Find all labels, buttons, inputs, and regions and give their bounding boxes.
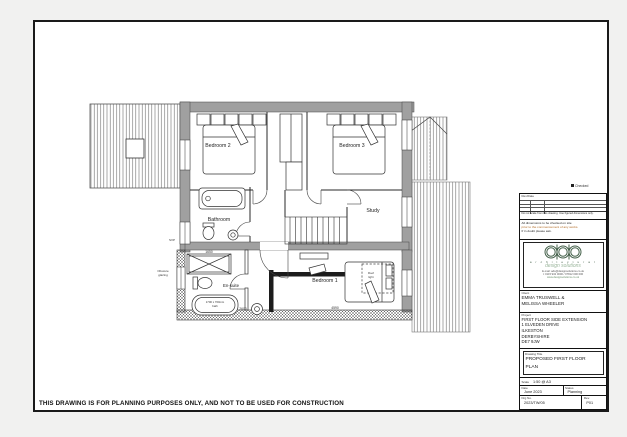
- notes-section: All dimensions to be checked on site pri…: [520, 220, 606, 240]
- status-cell: Status Planning: [564, 386, 607, 395]
- checked-label: Checked: [575, 184, 588, 188]
- flat-roof-left: [90, 104, 180, 188]
- logo-section: a r c h i t e c t u r a l design solutio…: [520, 240, 606, 292]
- label-bedroom3: Bedroom 3: [339, 143, 364, 149]
- bathroom-fittings: [199, 188, 245, 240]
- revision-label: Rev/Date: [520, 194, 606, 198]
- ensuite-partition: [245, 250, 248, 310]
- dim-bedroom1: 4590: [331, 306, 339, 310]
- rev-no-cell: Rev. P01: [581, 396, 606, 409]
- drawing-title-1: PROPOSED FIRST FLOOR: [524, 356, 603, 364]
- date-value: June 2023: [520, 390, 563, 394]
- project-section: Project FIRST FLOOR SIDE EXTENSION 1 ELV…: [520, 313, 606, 349]
- label-rooflight-2: light: [368, 275, 373, 279]
- project-line-5: DE7 9JW: [520, 339, 606, 345]
- scale-value: 1:50 @ A3: [529, 380, 551, 384]
- drawing-title-box: Drawing Title PROPOSED FIRST FLOOR PLAN: [523, 351, 604, 375]
- date-cell: Date June 2023: [520, 386, 564, 395]
- arco-logo-icon: [541, 243, 585, 261]
- stairs: [285, 217, 347, 244]
- roof-right: [412, 182, 470, 332]
- drawing-sheet: Bedroom 2 Bedroom 3 Bathroom Study Bedro…: [33, 20, 609, 412]
- drawing-number-row: Drg No. 2023/TW/05 Rev. P01: [520, 396, 606, 409]
- logo-box: a r c h i t e c t u r a l design solutio…: [523, 242, 604, 288]
- label-ensuite: En-suite: [223, 283, 240, 288]
- title-block: Rev/Date Do not scale from this drawing.…: [519, 193, 607, 410]
- label-svp: SVP: [169, 238, 175, 242]
- rooflight-left: [126, 139, 144, 158]
- drg-no-value: 2023/TW/05: [520, 400, 581, 405]
- scale-row: Scale 1:50 @ A3: [520, 378, 606, 386]
- checked-square-icon: [571, 184, 574, 187]
- label-bedroom1: Bedroom 1: [312, 278, 337, 284]
- label-bedroom2: Bedroom 2: [205, 143, 230, 149]
- client-name-2: MELISSA WHEELER: [520, 301, 606, 307]
- label-bath-size-2: bath: [212, 304, 218, 308]
- dim-shower: 1650: [205, 250, 213, 254]
- drg-no-cell: Drg No. 2023/TW/05: [520, 396, 581, 409]
- drawing-title-section: Drawing Title PROPOSED FIRST FLOOR PLAN: [520, 349, 606, 379]
- note-line-3: If in doubt please ask.: [522, 229, 605, 233]
- planning-disclaimer: THIS DRAWING IS FOR PLANNING PURPOSES ON…: [39, 400, 344, 407]
- date-status-row: Date June 2023 Status Planning: [520, 386, 606, 396]
- logo-website: www.designsolutions.co.uk: [547, 276, 579, 279]
- revision-caption: Do not scale from this drawing. Use figu…: [520, 211, 606, 219]
- dim-bath: 2600: [239, 307, 247, 311]
- cupboard: [280, 114, 302, 190]
- scale-label: Scale: [520, 380, 529, 384]
- checked-marker: Checked: [571, 184, 588, 188]
- drawing-title-2: PLAN: [524, 364, 603, 372]
- client-section: Client EMMA TRUSWELL & MELISSA WHEELER: [520, 291, 606, 313]
- status-value: Planning: [564, 390, 607, 394]
- label-bathroom: Bathroom: [208, 217, 231, 223]
- label-obscure-2: glazing: [158, 273, 168, 277]
- rev-no-value: P01: [582, 400, 606, 405]
- revision-table: Rev/Date Do not scale from this drawing.…: [520, 194, 606, 220]
- label-study: Study: [366, 208, 380, 214]
- gable-roof-right: [407, 117, 447, 180]
